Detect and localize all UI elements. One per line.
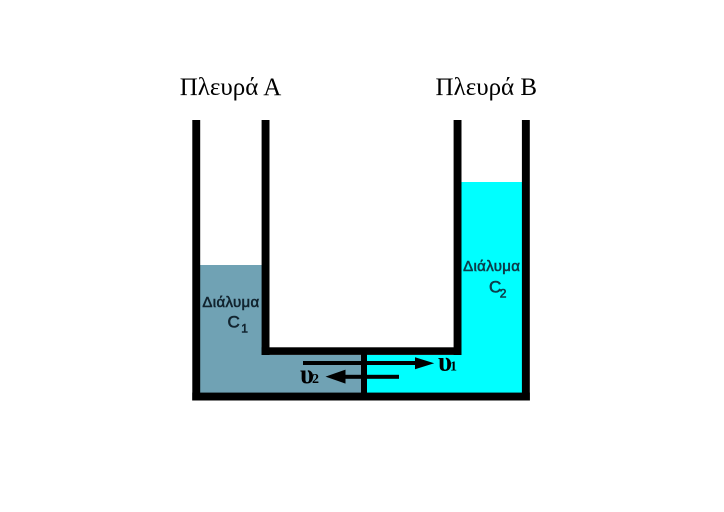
svg-text:Διάλυμα: Διάλυμα <box>463 258 520 275</box>
svg-text:Διάλυμα: Διάλυμα <box>202 294 259 311</box>
svg-text:Πλευρά Α: Πλευρά Α <box>180 74 282 101</box>
svg-text:Πλευρά Β: Πλευρά Β <box>436 74 538 101</box>
